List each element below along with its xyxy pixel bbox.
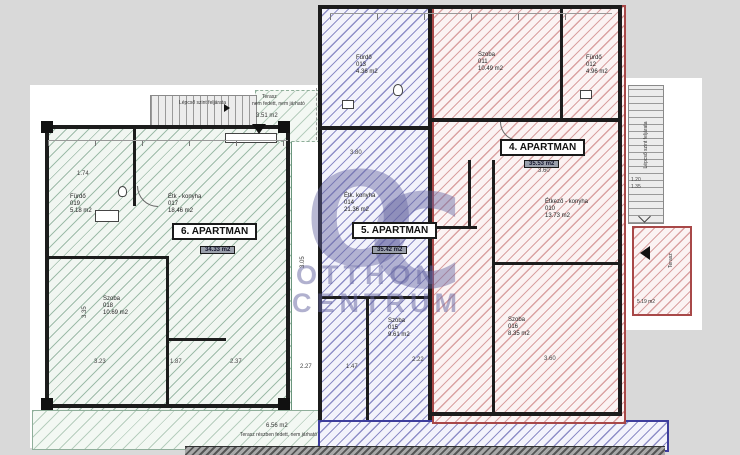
- dimension: 3.35: [82, 306, 88, 318]
- wall: [166, 338, 226, 341]
- dimension: 3.23: [94, 359, 106, 365]
- wall: [560, 8, 563, 118]
- dimension: 3.05: [300, 256, 306, 268]
- dimension: 2.22: [412, 357, 424, 363]
- entrance-arrow-icon: [640, 246, 650, 260]
- room-number: 012: [586, 62, 620, 69]
- room-number: 019: [70, 201, 130, 208]
- wall-pillar: [41, 121, 53, 133]
- wall: [48, 256, 166, 259]
- room-number: 013: [356, 62, 416, 69]
- room-name: Szoba: [508, 317, 568, 324]
- room-name: Szoba: [388, 318, 448, 325]
- room-label-szoba-bottom-4: Szoba 016 8.35 m2: [508, 317, 568, 338]
- room-area: 13.73 m2: [545, 213, 615, 220]
- terrace-top-note: nem fedett, nem járható: [252, 101, 314, 107]
- room-area: 4.36 m2: [356, 69, 416, 76]
- apartment-6-label: 6. APARTMAN: [172, 223, 257, 240]
- sink-fixture: [580, 90, 592, 99]
- floorplan-canvas: O C OTTHON CENTRUM Fürdő 019 5.18 m2 Étk…: [0, 0, 740, 455]
- wall: [45, 125, 49, 408]
- dimension: 2.37: [230, 359, 242, 365]
- room-label-furdo-5: Fürdő 013 4.36 m2: [356, 55, 416, 76]
- room-area: 4.96 m2: [586, 69, 620, 76]
- apartment-4-label: 4. APARTMAN: [500, 139, 585, 156]
- wall: [428, 5, 432, 420]
- dimension: 1.47: [346, 364, 358, 370]
- room-area: 5.18 m2: [70, 208, 130, 215]
- room-label-szoba-6: Szoba 018 10.69 m2: [103, 296, 163, 317]
- room-area: 18.46 m2: [168, 208, 228, 215]
- wall: [318, 5, 432, 9]
- room-number: 017: [168, 201, 228, 208]
- room-name: Szoba: [103, 296, 163, 303]
- wall: [166, 256, 169, 406]
- apartment-6-area-box: 34.33 m2: [200, 246, 235, 254]
- room-area: 21.36 m2: [344, 207, 404, 214]
- room-label-etkkonyha-6: Étk - konyha 017 18.46 m2: [168, 194, 228, 215]
- dimension: 1.35: [631, 184, 641, 190]
- dimension: 1.20: [631, 177, 641, 183]
- terrace-top-name: Terasz: [262, 94, 277, 100]
- entrance-arrow-icon: [252, 124, 266, 134]
- room-label-szoba-top-4: Szoba 011 10.49 m2: [478, 52, 538, 73]
- wall: [318, 296, 430, 299]
- wall: [432, 5, 622, 9]
- room-number: 014: [344, 200, 404, 207]
- room-number: 018: [103, 303, 163, 310]
- wall: [432, 118, 622, 122]
- terrace-bottom-note: Terasz részben fedett, nem járható: [240, 432, 360, 438]
- wall: [468, 160, 471, 229]
- sink-fixture: [342, 100, 354, 109]
- dashed-divider: [316, 88, 317, 140]
- wall: [366, 299, 369, 420]
- zone-apartment-6-terrace: [32, 410, 320, 450]
- room-name: Szoba: [478, 52, 538, 59]
- dimension-line-top: [330, 13, 612, 20]
- room-label-etkkonyha-5: Étk. konyha 014 21.36 m2: [344, 193, 404, 214]
- room-area: 10.69 m2: [103, 310, 163, 317]
- dimension-line-green-top: [48, 140, 288, 146]
- wall: [492, 160, 495, 412]
- room-label-szoba-5: Szoba 015 9.61 m2: [388, 318, 448, 339]
- room-area: 8.35 m2: [508, 331, 568, 338]
- room-area: 10.49 m2: [478, 66, 538, 73]
- wall: [432, 412, 622, 416]
- terrace-right-area: 5.19 m2: [637, 299, 655, 305]
- toilet-fixture: [393, 84, 403, 96]
- room-label-etkezo-4: Étkező - konyha 010 13.73 m2: [545, 199, 615, 220]
- dimension: 2.27: [300, 364, 312, 370]
- terrace-top-area: 3.51 m2: [256, 113, 278, 119]
- room-label-furdo-6: Fürdő 019 5.18 m2: [70, 194, 130, 215]
- room-name: Étk. konyha: [344, 193, 404, 200]
- dimension: 3.60: [544, 356, 556, 362]
- stair-right-label: Lépcső szint feljárata: [643, 100, 649, 190]
- dimension: 3.80: [350, 150, 362, 156]
- apartment-4-area-box: 35.53 m2: [524, 160, 559, 168]
- terrace-bottom-area: 6.56 m2: [266, 423, 288, 429]
- room-name: Fürdő: [70, 194, 130, 201]
- room-label-furdo-4: Fürdő 012 4.96 m2: [586, 55, 620, 76]
- stair-top-label: Lépcső szint feljárata: [160, 100, 245, 106]
- wall-pillar: [278, 398, 290, 410]
- wall: [318, 5, 322, 420]
- wall: [318, 126, 432, 130]
- room-number: 015: [388, 325, 448, 332]
- bottom-edge-strip: [185, 446, 665, 455]
- room-number: 011: [478, 59, 538, 66]
- room-number: 010: [545, 206, 615, 213]
- room-area: 9.61 m2: [388, 332, 448, 339]
- apartment-5-area-box: 35.42 m2: [372, 246, 407, 254]
- wall-pillar: [41, 398, 53, 410]
- wall-pillar: [278, 121, 290, 133]
- dimension: 3.60: [538, 168, 550, 174]
- room-name: Fürdő: [356, 55, 416, 62]
- terrace-right-name: Terasz: [668, 253, 674, 268]
- room-name: Étkező - konyha: [545, 199, 615, 206]
- dimension: 1.87: [170, 359, 182, 365]
- room-name: Étk - konyha: [168, 194, 228, 201]
- wall: [286, 125, 290, 408]
- room-name: Fürdő: [586, 55, 620, 62]
- room-number: 016: [508, 324, 568, 331]
- dimension: 1.74: [77, 171, 89, 177]
- wall: [492, 262, 621, 265]
- apartment-5-label: 5. APARTMAN: [352, 222, 437, 239]
